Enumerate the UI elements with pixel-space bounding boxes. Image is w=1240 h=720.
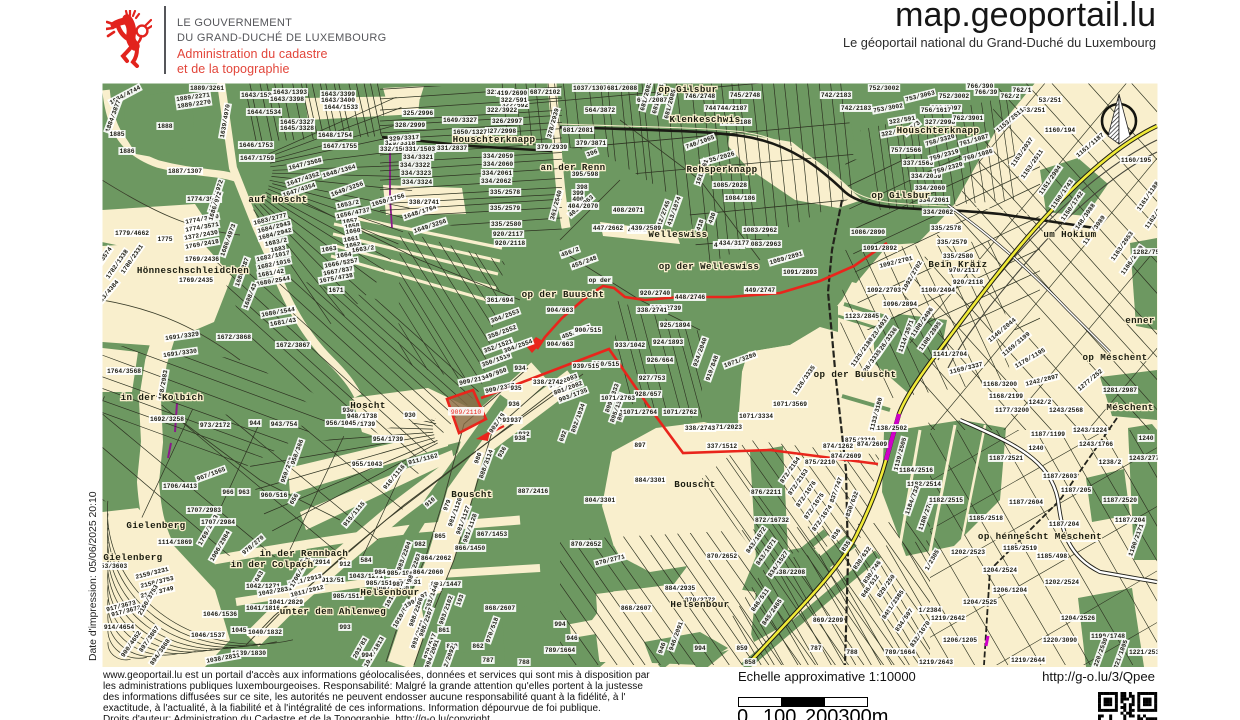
svg-text:900/515: 900/515 — [575, 327, 602, 334]
svg-text:1206/1205: 1206/1205 — [943, 637, 977, 644]
svg-text:334/2062: 334/2062 — [481, 178, 511, 185]
svg-text:1707/2984: 1707/2984 — [201, 519, 235, 526]
svg-text:337/1512: 337/1512 — [707, 443, 737, 450]
svg-text:334/2061: 334/2061 — [482, 170, 512, 177]
svg-text:874/1262: 874/1262 — [823, 443, 853, 450]
svg-text:Houschterknapp: Houschterknapp — [453, 134, 536, 145]
svg-text:1888: 1888 — [157, 123, 172, 130]
svg-text:1187/2520: 1187/2520 — [1103, 497, 1137, 504]
svg-text:870/2652: 870/2652 — [707, 553, 737, 560]
svg-text:757/1566: 757/1566 — [891, 147, 921, 154]
svg-text:1643/1393: 1643/1393 — [273, 89, 307, 96]
svg-text:334/3322: 334/3322 — [400, 162, 430, 169]
svg-text:448/2746: 448/2746 — [675, 294, 705, 301]
svg-text:584: 584 — [360, 557, 372, 564]
svg-text:954/1739: 954/1739 — [373, 436, 403, 443]
svg-text:744/2187: 744/2187 — [717, 105, 747, 112]
svg-text:946: 946 — [566, 635, 578, 642]
svg-text:331/1503: 331/1503 — [405, 146, 435, 153]
svg-text:1243/1766: 1243/1766 — [1079, 441, 1113, 448]
svg-text:1643/3400: 1643/3400 — [321, 97, 355, 104]
svg-text:788: 788 — [846, 649, 858, 656]
svg-text:in der Rennbach: in der Rennbach — [260, 548, 349, 559]
svg-text:867/1453: 867/1453 — [477, 531, 507, 538]
svg-text:331/2837: 331/2837 — [437, 145, 467, 152]
svg-text:338/2743: 338/2743 — [685, 425, 715, 432]
svg-text:1187/2604: 1187/2604 — [1009, 499, 1043, 506]
svg-text:909/2110: 909/2110 — [451, 409, 481, 416]
svg-text:858: 858 — [744, 659, 756, 666]
svg-text:1769/2436: 1769/2436 — [185, 256, 219, 263]
svg-text:870/2652: 870/2652 — [571, 541, 601, 548]
svg-text:1092/2703: 1092/2703 — [867, 287, 901, 294]
svg-text:1160/194: 1160/194 — [1045, 127, 1075, 134]
svg-text:1643/3398: 1643/3398 — [270, 96, 304, 103]
svg-text:920/2118: 920/2118 — [953, 279, 983, 286]
svg-text:993: 993 — [339, 624, 351, 631]
svg-text:1185/2519: 1185/2519 — [1003, 545, 1037, 552]
svg-text:1282/751: 1282/751 — [1133, 249, 1163, 256]
svg-text:938: 938 — [514, 435, 526, 442]
svg-text:994: 994 — [361, 652, 373, 659]
svg-text:966: 966 — [222, 489, 234, 496]
svg-text:1243/2772: 1243/2772 — [1129, 455, 1163, 462]
svg-text:904/663: 904/663 — [547, 341, 574, 348]
svg-text:153/3603: 153/3603 — [97, 563, 127, 570]
svg-text:869/2209: 869/2209 — [813, 617, 843, 624]
svg-text:1769/2435: 1769/2435 — [179, 277, 213, 284]
svg-text:936: 936 — [508, 401, 520, 408]
svg-text:1091/2893: 1091/2893 — [783, 269, 817, 276]
svg-text:1184/2516: 1184/2516 — [899, 467, 933, 474]
svg-text:884/2935: 884/2935 — [665, 585, 695, 592]
svg-text:928/657: 928/657 — [635, 391, 662, 398]
svg-text:1071/2762: 1071/2762 — [663, 409, 697, 416]
svg-text:1243/2568: 1243/2568 — [1049, 407, 1083, 414]
svg-text:1096/2894: 1096/2894 — [883, 301, 917, 308]
svg-text:404/2070: 404/2070 — [568, 203, 598, 210]
svg-text:943/754: 943/754 — [271, 421, 298, 428]
svg-text:op Gilsbur: op Gilsbur — [871, 190, 930, 201]
svg-text:334/2059: 334/2059 — [483, 153, 513, 160]
svg-text:1114/1869: 1114/1869 — [158, 539, 192, 546]
svg-text:1889/3261: 1889/3261 — [190, 85, 224, 92]
svg-text:328/2999: 328/2999 — [395, 122, 425, 129]
svg-text:1/2384: 1/2384 — [919, 607, 942, 614]
svg-text:1204/2525: 1204/2525 — [963, 599, 997, 606]
svg-text:1672/3867: 1672/3867 — [276, 342, 310, 349]
svg-text:1775: 1775 — [157, 236, 172, 243]
svg-text:985/1517: 985/1517 — [333, 593, 363, 600]
svg-text:335/2579: 335/2579 — [937, 239, 967, 246]
svg-text:866/1450: 866/1450 — [455, 545, 485, 552]
svg-text:1083/2963: 1083/2963 — [747, 241, 781, 248]
svg-text:789/1664: 789/1664 — [885, 649, 915, 656]
svg-text:1219/2642: 1219/2642 — [931, 615, 965, 622]
svg-text:1649/3327: 1649/3327 — [443, 117, 477, 124]
svg-text:338/2741: 338/2741 — [637, 307, 667, 314]
svg-text:1692/3258: 1692/3258 — [150, 416, 184, 423]
svg-text:Méschent: Méschent — [1106, 402, 1153, 413]
svg-text:1242/2: 1242/2 — [1029, 399, 1052, 406]
svg-text:361/694: 361/694 — [487, 297, 514, 304]
svg-text:1040/1832: 1040/1832 — [248, 629, 282, 636]
svg-text:1645/3328: 1645/3328 — [280, 125, 314, 132]
svg-text:1182/2514: 1182/2514 — [907, 481, 941, 488]
svg-text:enner: enner — [1125, 315, 1155, 326]
svg-text:326/2997: 326/2997 — [492, 118, 522, 125]
svg-text:912: 912 — [339, 561, 351, 568]
svg-text:op der Welleswiss: op der Welleswiss — [659, 261, 760, 272]
svg-text:994: 994 — [694, 645, 706, 652]
svg-text:742/2183: 742/2183 — [841, 105, 871, 112]
svg-text:335/2579: 335/2579 — [490, 205, 520, 212]
svg-text:Klenkeschwis: Klenkeschwis — [670, 114, 741, 125]
svg-text:1779/4662: 1779/4662 — [115, 230, 149, 237]
svg-text:334/3321: 334/3321 — [403, 154, 433, 161]
svg-text:0: 0 — [738, 706, 748, 720]
svg-text:338/2742: 338/2742 — [533, 379, 563, 386]
svg-text:1187/205: 1187/205 — [1061, 487, 1091, 494]
svg-text:982: 982 — [414, 541, 426, 548]
svg-text:1646/1753: 1646/1753 — [239, 142, 273, 149]
svg-text:1168/2199: 1168/2199 — [989, 393, 1023, 400]
svg-text:200300m: 200300m — [805, 706, 888, 720]
svg-text:766/39: 766/39 — [975, 89, 998, 96]
svg-text:335/2580: 335/2580 — [491, 221, 521, 228]
svg-text:913/51: 913/51 — [322, 577, 345, 584]
svg-text:unter dem Ahlenweg: unter dem Ahlenweg — [280, 606, 386, 617]
svg-text:op der Buuscht: op der Buuscht — [522, 289, 605, 300]
svg-text:1185/498: 1185/498 — [1037, 553, 1067, 560]
svg-text:1243/1224: 1243/1224 — [1073, 427, 1107, 434]
svg-text:1041/1816: 1041/1816 — [246, 605, 280, 612]
svg-text:1071/2763: 1071/2763 — [601, 395, 635, 402]
svg-text:861: 861 — [438, 627, 450, 634]
svg-text:930: 930 — [404, 412, 416, 419]
svg-text:322/3922: 322/3922 — [487, 107, 517, 114]
svg-text:408/2071: 408/2071 — [613, 207, 643, 214]
svg-text:an der Renn: an der Renn — [540, 162, 605, 173]
svg-text:564/3872: 564/3872 — [585, 107, 615, 114]
svg-text:379/3871: 379/3871 — [576, 140, 606, 147]
svg-text:334/2060: 334/2060 — [483, 161, 513, 168]
svg-text:1220/3090: 1220/3090 — [1043, 637, 1077, 644]
svg-text:1238/2: 1238/2 — [1099, 459, 1122, 466]
svg-text:804/3301: 804/3301 — [585, 497, 615, 504]
svg-text:935: 935 — [510, 385, 522, 392]
svg-text:op Méschent: op Méschent — [1082, 352, 1147, 363]
svg-text:1177/3200: 1177/3200 — [995, 407, 1029, 414]
svg-text:Bein Kräiz: Bein Kräiz — [928, 259, 987, 270]
svg-text:876/2211: 876/2211 — [751, 489, 781, 496]
svg-text:859: 859 — [736, 645, 748, 652]
svg-text:Gielenberg: Gielenberg — [126, 520, 185, 531]
svg-text:1707/2983: 1707/2983 — [187, 507, 221, 514]
svg-text:1706/4413: 1706/4413 — [163, 483, 197, 490]
svg-text:337/1566: 337/1566 — [903, 160, 933, 167]
svg-text:100: 100 — [763, 706, 796, 720]
svg-text:1240: 1240 — [1138, 435, 1153, 442]
svg-text:864/2062: 864/2062 — [421, 555, 451, 562]
svg-text:1648/1754: 1648/1754 — [318, 132, 352, 139]
svg-text:920/2740: 920/2740 — [640, 290, 670, 297]
svg-text:925/1894: 925/1894 — [660, 322, 690, 329]
svg-text:762/1: 762/1 — [1013, 87, 1032, 94]
svg-text:Rehsperknapp: Rehsperknapp — [687, 164, 758, 175]
svg-text:1764/3568: 1764/3568 — [107, 368, 141, 375]
svg-text:681/2088: 681/2088 — [607, 85, 637, 92]
svg-text:1168/3200: 1168/3200 — [983, 381, 1017, 388]
svg-text:322/591: 322/591 — [501, 97, 528, 104]
svg-text:op der Buuscht: op der Buuscht — [814, 369, 897, 380]
svg-text:1644/1533: 1644/1533 — [324, 104, 358, 111]
svg-text:Hönneschschleidchen: Hönneschschleidchen — [137, 265, 249, 276]
svg-text:Gielenberg: Gielenberg — [103, 552, 162, 563]
svg-text:920/2117: 920/2117 — [493, 231, 523, 238]
svg-text:884/3301: 884/3301 — [635, 477, 665, 484]
svg-text:1123/2845: 1123/2845 — [845, 313, 879, 320]
svg-text:956/1045: 956/1045 — [326, 420, 356, 427]
svg-text:933/1042: 933/1042 — [615, 342, 645, 349]
svg-text:687/2102: 687/2102 — [530, 89, 560, 96]
svg-text:1281/2987: 1281/2987 — [1103, 387, 1137, 394]
svg-text:948/1738: 948/1738 — [347, 413, 377, 420]
svg-text:924/1893: 924/1893 — [653, 339, 683, 346]
svg-text:in der Kolbich: in der Kolbich — [121, 392, 204, 403]
svg-text:963: 963 — [238, 489, 250, 496]
svg-text:897: 897 — [634, 442, 646, 449]
svg-text:1644/1534: 1644/1534 — [247, 109, 281, 116]
svg-text:um Hokium: um Hokium — [1043, 229, 1096, 240]
svg-text:1071/3569: 1071/3569 — [773, 401, 807, 408]
svg-text:994: 994 — [554, 621, 566, 628]
svg-text:1672/3868: 1672/3868 — [217, 334, 251, 341]
svg-text:944: 944 — [249, 420, 261, 427]
svg-text:379/2939: 379/2939 — [537, 144, 567, 151]
svg-text:787: 787 — [810, 645, 822, 652]
svg-text:in der Colpach: in der Colpach — [231, 559, 314, 570]
svg-text:1037/1307: 1037/1307 — [573, 85, 607, 92]
svg-text:875/2210: 875/2210 — [805, 459, 835, 466]
svg-text:Hoscht: Hoscht — [350, 400, 385, 411]
svg-text:334/3324: 334/3324 — [402, 179, 432, 186]
svg-text:868/2607: 868/2607 — [485, 605, 515, 612]
svg-text:865: 865 — [434, 533, 446, 540]
svg-text:787: 787 — [482, 657, 494, 664]
svg-text:914/4654: 914/4654 — [104, 624, 134, 631]
svg-text:op der: op der — [589, 277, 612, 284]
svg-text:1185/2518: 1185/2518 — [969, 515, 1003, 522]
svg-text:334/3323: 334/3323 — [401, 170, 431, 177]
svg-text:872/16732: 872/16732 — [755, 517, 789, 524]
svg-text:862: 862 — [472, 643, 484, 650]
svg-text:681/2081: 681/2081 — [563, 127, 593, 134]
svg-text:920/2118: 920/2118 — [495, 240, 525, 247]
svg-text:1138/2502: 1138/2502 — [873, 425, 907, 432]
svg-text:874/2609: 874/2609 — [857, 441, 887, 448]
svg-text:335/2578: 335/2578 — [490, 189, 520, 196]
svg-text:789/1664: 789/1664 — [545, 647, 575, 654]
svg-text:338/2741: 338/2741 — [409, 199, 439, 206]
svg-text:Houschterknapp: Houschterknapp — [897, 125, 980, 136]
svg-text:868/2607: 868/2607 — [621, 605, 651, 612]
svg-text:1187/2603: 1187/2603 — [1043, 473, 1077, 480]
svg-text:1885: 1885 — [109, 131, 124, 138]
svg-text:788: 788 — [518, 659, 530, 666]
svg-text:934: 934 — [514, 365, 526, 372]
svg-text:1091/2892: 1091/2892 — [863, 245, 897, 252]
svg-text:864/2060: 864/2060 — [413, 569, 443, 576]
svg-text:1204/2526: 1204/2526 — [1061, 615, 1095, 622]
svg-text:auf Hoscht: auf Hoscht — [248, 194, 307, 205]
svg-text:1100/2494: 1100/2494 — [921, 287, 955, 294]
svg-text:Helsenbour: Helsenbour — [360, 587, 419, 598]
svg-text:1187/204: 1187/204 — [1049, 521, 1079, 528]
svg-text:335/2578: 335/2578 — [931, 225, 961, 232]
svg-text:1071/2764: 1071/2764 — [623, 409, 657, 416]
svg-text:1887/1307: 1887/1307 — [168, 168, 202, 175]
svg-text:1187/2521: 1187/2521 — [989, 455, 1023, 462]
svg-text:1671: 1671 — [328, 287, 343, 294]
svg-text:1647/1759: 1647/1759 — [240, 155, 274, 162]
svg-text:1046/1536: 1046/1536 — [203, 611, 237, 618]
svg-text:447/2662: 447/2662 — [593, 225, 623, 232]
svg-text:926/664: 926/664 — [647, 357, 674, 364]
svg-text:1083/2962: 1083/2962 — [743, 227, 777, 234]
svg-text:1160/195: 1160/195 — [1121, 157, 1151, 164]
svg-text:1202/2524: 1202/2524 — [1045, 579, 1079, 586]
svg-text:53/251: 53/251 — [1039, 97, 1062, 104]
svg-text:904/663: 904/663 — [547, 307, 574, 314]
svg-text:Bouscht: Bouscht — [451, 489, 492, 500]
svg-text:742/2183: 742/2183 — [821, 92, 851, 99]
svg-text:752/3002: 752/3002 — [869, 85, 899, 92]
svg-text:1045: 1045 — [231, 627, 246, 634]
svg-text:Welleswiss: Welleswiss — [648, 229, 707, 240]
svg-text:752/3002: 752/3002 — [939, 93, 969, 100]
svg-text:984: 984 — [374, 569, 386, 576]
svg-text:927/753: 927/753 — [639, 375, 666, 382]
svg-text:937: 937 — [510, 417, 522, 424]
svg-text:1219/2643: 1219/2643 — [919, 659, 953, 666]
svg-text:939/515: 939/515 — [573, 363, 600, 370]
svg-text:325/2996: 325/2996 — [403, 110, 433, 117]
svg-text:1071/3334: 1071/3334 — [739, 413, 773, 420]
svg-text:449/2747: 449/2747 — [745, 287, 775, 294]
svg-text:1085/2028: 1085/2028 — [713, 182, 747, 189]
svg-text:op hénnescht Méschent: op hénnescht Méschent — [978, 531, 1102, 542]
svg-text:1086/2890: 1086/2890 — [851, 229, 885, 236]
svg-text:745/2748: 745/2748 — [730, 92, 760, 99]
svg-text:1046/1537: 1046/1537 — [191, 632, 225, 639]
svg-text:887/2416: 887/2416 — [518, 488, 548, 495]
svg-text:1084/186: 1084/186 — [725, 195, 755, 202]
svg-text:1202/2523: 1202/2523 — [951, 549, 985, 556]
svg-text:955/1043: 955/1043 — [352, 461, 382, 468]
svg-text:973/2172: 973/2172 — [200, 422, 230, 429]
svg-text:756/1617: 756/1617 — [921, 107, 951, 114]
svg-text:op Gilsbur: op Gilsbur — [658, 84, 717, 95]
svg-text:1886: 1886 — [119, 148, 134, 155]
svg-text:334/2062: 334/2062 — [923, 209, 953, 216]
svg-text:434/3177: 434/3177 — [719, 240, 749, 247]
svg-text:762/3901: 762/3901 — [953, 115, 983, 122]
svg-text:1187/1199: 1187/1199 — [1031, 431, 1065, 438]
svg-text:1221/2532: 1221/2532 — [1129, 649, 1163, 656]
svg-text:419/2690: 419/2690 — [497, 90, 527, 97]
svg-text:1240: 1240 — [1028, 445, 1043, 452]
svg-text:838/2208: 838/2208 — [775, 569, 805, 576]
svg-text:1141/2704: 1141/2704 — [933, 351, 967, 358]
svg-text:1206/1204: 1206/1204 — [993, 587, 1027, 594]
svg-text:Bouscht: Bouscht — [674, 479, 715, 490]
svg-text:Helsenbour: Helsenbour — [670, 599, 729, 610]
svg-text:960/516: 960/516 — [261, 492, 288, 499]
svg-text:1204/2524: 1204/2524 — [983, 567, 1017, 574]
svg-text:1647/1755: 1647/1755 — [323, 143, 357, 150]
svg-text:1219/2644: 1219/2644 — [1011, 657, 1045, 664]
svg-text:1182/2515: 1182/2515 — [929, 497, 963, 504]
